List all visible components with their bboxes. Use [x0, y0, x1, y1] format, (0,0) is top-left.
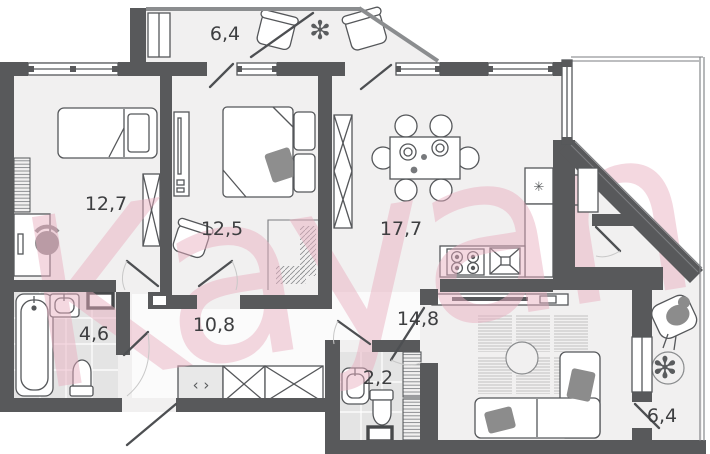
plant-icon: ✻ [652, 351, 677, 386]
single-bed [58, 108, 157, 158]
vent-box [368, 427, 392, 441]
room-label-bedroom-2: 12,5 [201, 218, 243, 240]
window [28, 63, 118, 75]
balcony-side-window [148, 13, 170, 57]
balcony-window [632, 337, 652, 392]
room-label-balcony-top: 6,4 [210, 23, 240, 45]
plant-icon: ✻ [309, 16, 331, 46]
room-label-wc: 2,2 [363, 367, 393, 389]
room-label-bedroom-1: 12,7 [85, 193, 127, 215]
room-label-hallway: 10,8 [193, 314, 235, 336]
floor-plan-canvas: ✳ ‹ › [0, 0, 710, 454]
radiator [574, 168, 598, 212]
room-label-bathroom: 4,6 [79, 323, 109, 345]
window [237, 63, 277, 75]
room-label-kitchen-dining: 17,7 [380, 218, 422, 240]
window [396, 63, 440, 75]
corner-window [562, 60, 572, 144]
room-label-balcony-right: 6,4 [647, 405, 677, 427]
floor-plan: ✳ ‹ › [0, 0, 710, 454]
room-label-living-room: 14,8 [397, 308, 439, 330]
window [488, 63, 553, 75]
